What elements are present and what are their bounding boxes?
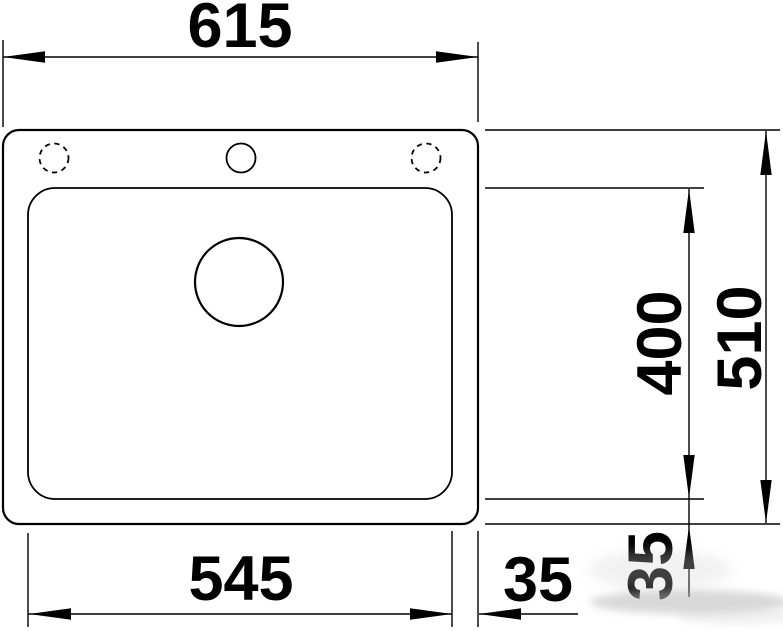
dim-right-edge-offset: 35 [478,531,578,627]
dim-label-bottom-edge-offset: 35 [616,531,686,601]
arrowhead-left [29,608,71,619]
arrowhead-left [3,51,45,62]
drain-hole-circle [195,238,283,326]
arrowhead-down [683,455,694,498]
dim-label-overall-depth: 510 [705,285,775,390]
dim-label-right-edge-offset: 35 [503,545,573,615]
dim-label-bowl-depth: 400 [625,290,695,395]
dim-label-overall-width: 615 [187,0,292,61]
dim-overall-width: 615 [3,0,478,127]
tap-hole-circle [227,144,256,173]
arrowhead-right [410,608,452,619]
dim-bottom-edge-offset: 35 [616,526,695,601]
arrowhead-right [436,51,478,62]
optional-tap-hole-right-circle [412,144,441,173]
bowl-inner-outline [28,188,452,499]
sink-body [3,130,478,524]
smudge-shape [675,606,783,624]
dim-bowl-width: 545 [28,531,452,627]
dim-label-bowl-width: 545 [188,544,293,614]
arrowhead-down [760,480,771,523]
drawing-svg: 615 510 400 35 [0,0,783,631]
arrowhead-up [683,189,694,233]
optional-tap-hole-left-circle [40,144,69,173]
sink-dimension-drawing: 615 510 400 35 [0,0,783,631]
arrowhead-up [760,131,771,175]
